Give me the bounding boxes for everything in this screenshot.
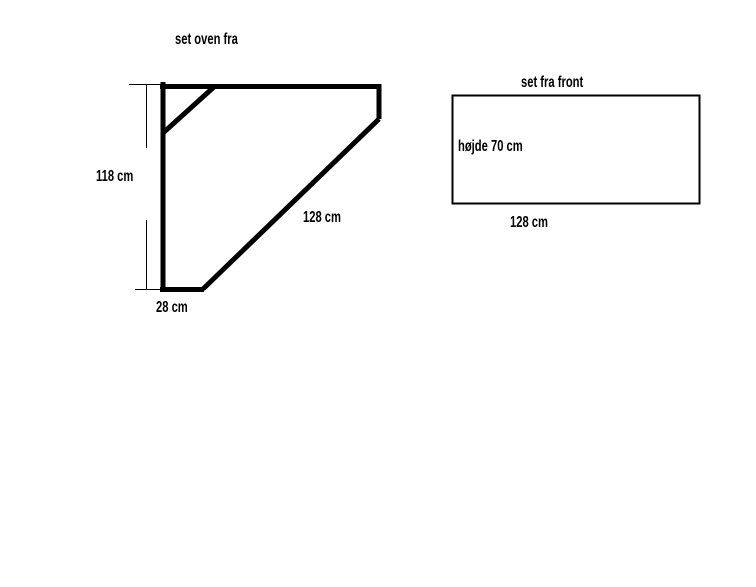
front-view-width-dimension-label: 128 cm: [510, 215, 548, 231]
top-view-inner-diagonal-line: [163, 86, 215, 133]
top-view-diagonal-dimension-label: 128 cm: [303, 210, 341, 226]
top-view-height-dimension-label: 118 cm: [96, 169, 133, 185]
top-view-diagonal-line: [203, 119, 379, 289]
drawing-canvas: set oven fra 118 cm 128 cm 28 cm set fra…: [0, 0, 756, 587]
diagram-drawing: [0, 0, 756, 587]
front-view-height-label: højde 70 cm: [458, 139, 523, 155]
top-view-title: set oven fra: [175, 32, 238, 48]
top-view-depth-dimension-label: 28 cm: [156, 300, 188, 316]
front-view-title: set fra front: [521, 75, 583, 91]
